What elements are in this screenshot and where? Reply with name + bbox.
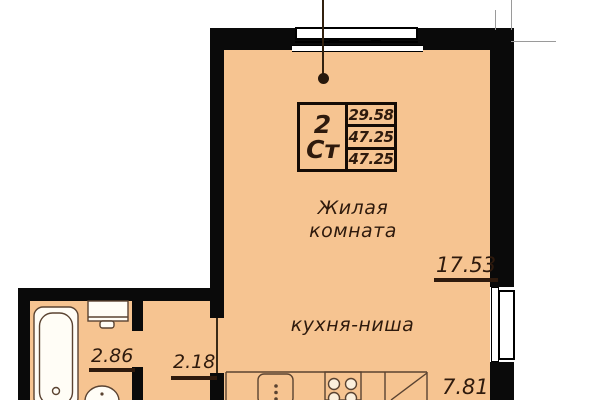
living-room-label: Жилая комната	[278, 197, 428, 243]
living-area-number: 17.53	[434, 254, 498, 276]
kitchen-label: кухня-ниша	[280, 314, 425, 337]
kitchen-area-number: 7.81	[440, 376, 491, 398]
unit-area-total: 47.25	[348, 127, 394, 149]
living-area-value: 17.53	[434, 254, 498, 282]
unit-type-label: Ст	[306, 137, 339, 162]
kitchen-label-text: кухня-ниша	[280, 314, 425, 337]
hallway-area-value: 2.18	[171, 352, 217, 380]
kitchen-sink-icon	[258, 374, 293, 400]
bathroom-sink-icon	[88, 301, 128, 328]
unit-areas-column: 29.58 47.25 47.25	[348, 105, 394, 169]
bathtub-icon	[34, 307, 78, 400]
unit-info-box: 2 Ст 29.58 47.25 47.25	[297, 102, 397, 172]
stove-icon	[325, 372, 361, 400]
hallway-area-underline	[171, 376, 217, 380]
toilet-icon	[85, 386, 119, 400]
floor-plan: 2 Ст 29.58 47.25 47.25 Жилая комната кух…	[0, 0, 603, 400]
unit-area-total2: 47.25	[348, 150, 394, 169]
hallway-area-number: 2.18	[171, 352, 217, 372]
living-area-underline	[434, 278, 498, 282]
kitchen-area-value: 7.81	[440, 376, 491, 400]
living-room-label-line1: Жилая	[278, 197, 428, 220]
bathroom-area-number: 2.86	[89, 346, 135, 366]
unit-type-cell: 2 Ст	[300, 105, 348, 169]
unit-rooms-count: 2	[314, 112, 331, 137]
bathroom-area-value: 2.86	[89, 346, 135, 372]
unit-area-living: 29.58	[348, 105, 394, 127]
corner-cabinet-icon	[385, 372, 427, 400]
living-room-label-line2: комната	[278, 220, 428, 243]
bathroom-area-underline	[89, 368, 135, 372]
